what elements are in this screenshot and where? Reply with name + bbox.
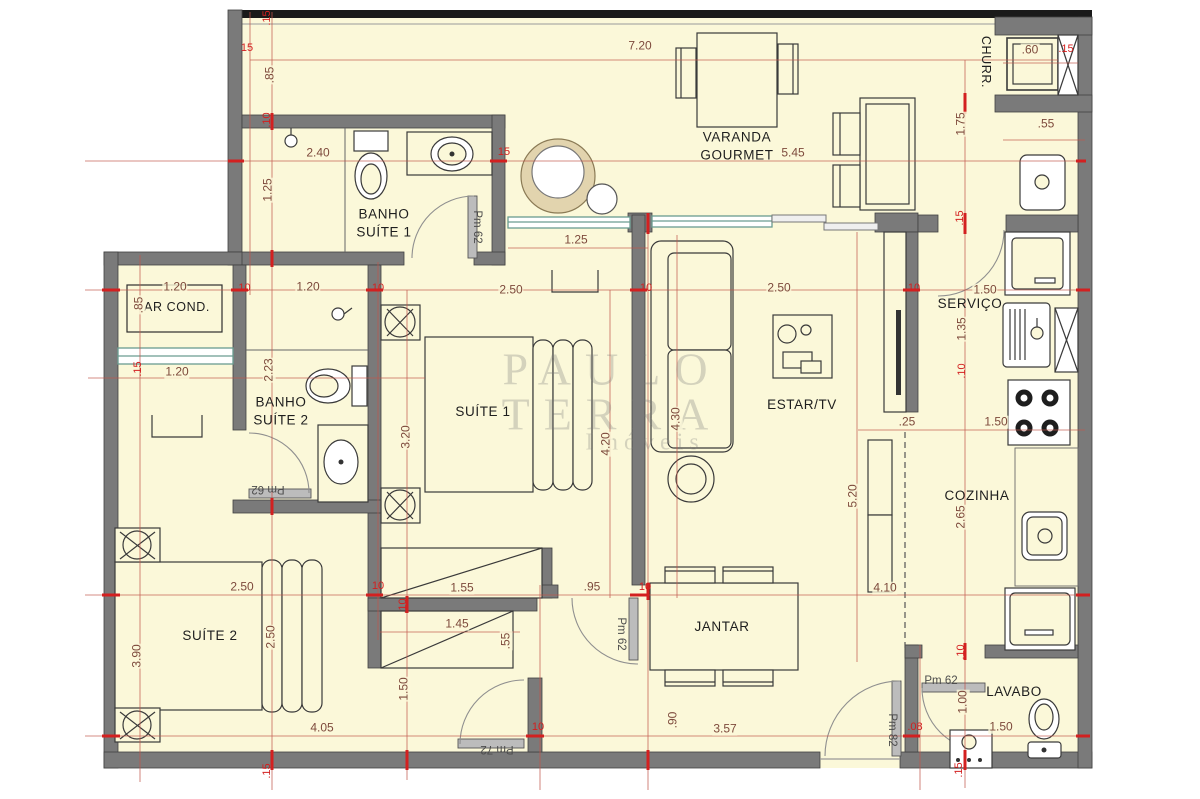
laundry-tank-icon	[1003, 303, 1050, 367]
sofa-icon	[651, 241, 733, 452]
door-leaf-entry-icon	[892, 681, 901, 756]
stove-icon	[1008, 380, 1070, 445]
tv-panel-icon	[884, 232, 906, 412]
gourmet-counter-icon	[833, 98, 915, 210]
side-table-icon	[668, 456, 714, 502]
washing-machine-icon	[1005, 232, 1070, 295]
ar-cond-unit-icon	[127, 285, 222, 332]
coffee-table-icon	[773, 315, 832, 378]
floor-plan-drawing	[0, 0, 1200, 799]
door-leaf-banho2-icon	[249, 489, 311, 498]
suite2-closet-icon	[381, 611, 513, 668]
door-leaf-banho1-icon	[468, 196, 477, 258]
floor-plan: PAULO TERRA Imóveis VARANDA GOURMETCHURR…	[0, 0, 1200, 799]
door-leaf-lavabo-icon	[922, 683, 985, 692]
door-leaf-suite1-icon	[629, 598, 638, 660]
churrasqueira-icon	[1007, 35, 1078, 95]
churr-sink-icon	[1020, 155, 1065, 210]
duct-icon	[1055, 308, 1078, 372]
suite1-closet-icon	[381, 548, 542, 598]
jantar-table-icon	[650, 567, 798, 686]
balcony-railing	[228, 10, 1092, 18]
door-leaf-suite2-icon	[458, 739, 524, 748]
